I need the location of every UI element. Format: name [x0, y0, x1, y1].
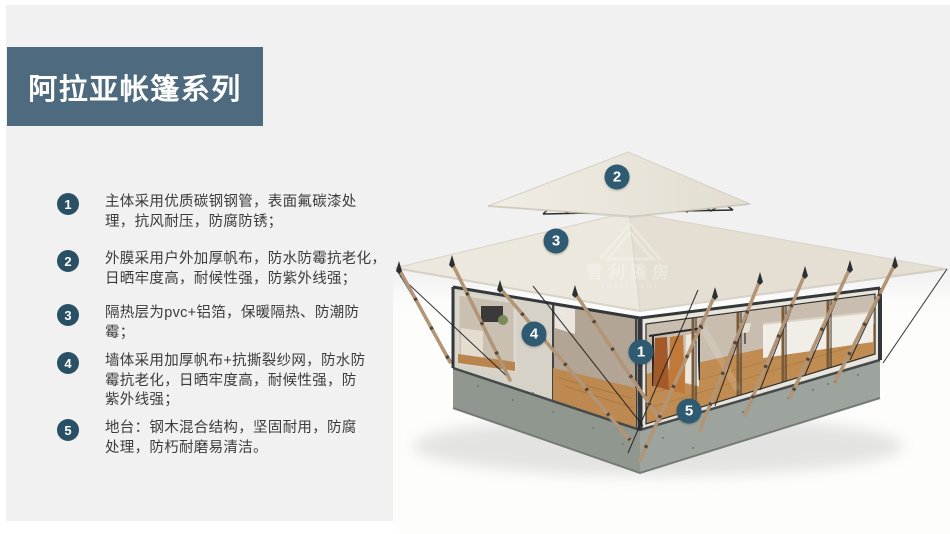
feature-badge-5: 5: [57, 419, 79, 441]
feature-4-line-1: 墙体采用加厚帆布+抗撕裂纱网，防水防: [105, 352, 365, 372]
feature-text-3: 隔热层为pvc+铝箔，保暖隔热、防潮防 霉；: [105, 304, 359, 343]
image-marker-3: 3: [544, 229, 569, 254]
feature-4-line-3: 紫外线强；: [105, 391, 365, 411]
feature-item-5: 5 地台：钢木混合结构，坚固耐用，防腐 处理，防朽耐磨易清洁。: [57, 419, 357, 458]
feature-text-4: 墙体采用加厚帆布+抗撕裂纱网，防水防 霉抗老化，日晒牢度高，耐候性强，防 紫外线…: [105, 352, 365, 411]
feature-item-3: 3 隔热层为pvc+铝箔，保暖隔热、防潮防 霉；: [57, 304, 359, 343]
feature-badge-4: 4: [57, 352, 79, 374]
feature-item-1: 1 主体采用优质碳钢钢管，表面氟碳漆处 理，抗风耐压，防腐防锈；: [57, 193, 357, 232]
feature-badge-2: 2: [57, 250, 79, 272]
feature-4-line-2: 霉抗老化，日晒牢度高，耐候性强，防: [105, 372, 365, 392]
watermark-subtext: XUELI TENT: [600, 284, 660, 290]
page-title: 阿拉亚帐篷系列: [28, 66, 242, 108]
feature-text-1: 主体采用优质碳钢钢管，表面氟碳漆处 理，抗风耐压，防腐防锈；: [105, 193, 357, 232]
tent-photo: 雪利篷房 XUELI TENT: [393, 128, 950, 534]
feature-3-line-1: 隔热层为pvc+铝箔，保暖隔热、防潮防: [105, 304, 359, 324]
watermark-text: 雪利篷房: [586, 262, 674, 282]
image-marker-4: 4: [522, 322, 547, 347]
feature-5-line-2: 处理，防朽耐磨易清洁。: [105, 439, 357, 459]
feature-text-5: 地台：钢木混合结构，坚固耐用，防腐 处理，防朽耐磨易清洁。: [105, 419, 357, 458]
feature-3-line-2: 霉；: [105, 324, 359, 344]
slide-page: 阿拉亚帐篷系列 1 主体采用优质碳钢钢管，表面氟碳漆处 理，抗风耐压，防腐防锈；…: [0, 0, 950, 534]
feature-2-line-1: 外膜采用户外加厚帆布，防水防霉抗老化，: [105, 250, 386, 270]
feature-text-2: 外膜采用户外加厚帆布，防水防霉抗老化， 日晒牢度高，耐候性强，防紫外线强；: [105, 250, 386, 289]
feature-badge-1: 1: [57, 193, 79, 215]
feature-item-4: 4 墙体采用加厚帆布+抗撕裂纱网，防水防 霉抗老化，日晒牢度高，耐候性强，防 紫…: [57, 352, 365, 411]
feature-5-line-1: 地台：钢木混合结构，坚固耐用，防腐: [105, 419, 357, 439]
feature-badge-3: 3: [57, 304, 79, 326]
image-marker-2: 2: [605, 165, 630, 190]
image-marker-1: 1: [629, 340, 654, 365]
feature-item-2: 2 外膜采用户外加厚帆布，防水防霉抗老化， 日晒牢度高，耐候性强，防紫外线强；: [57, 250, 386, 289]
title-banner: 阿拉亚帐篷系列: [7, 47, 263, 126]
image-marker-5: 5: [677, 399, 702, 424]
feature-2-line-2: 日晒牢度高，耐候性强，防紫外线强；: [105, 270, 386, 290]
feature-1-line-2: 理，抗风耐压，防腐防锈；: [105, 213, 357, 233]
feature-1-line-1: 主体采用优质碳钢钢管，表面氟碳漆处: [105, 193, 357, 213]
